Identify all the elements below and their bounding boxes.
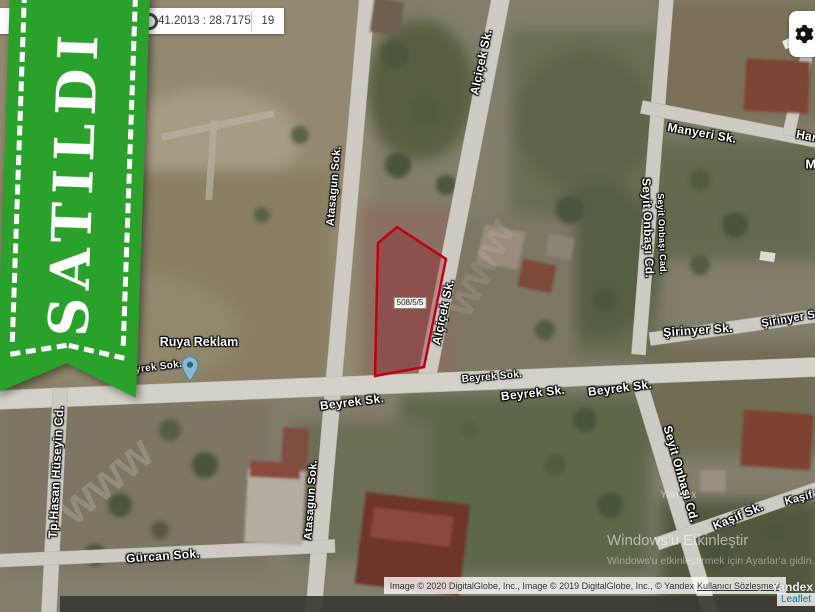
settings-button[interactable]: [789, 11, 815, 57]
ribbon-dash-notch-right: [68, 343, 125, 361]
ribbon-dash-left: [10, 0, 29, 342]
map-pin-icon[interactable]: [181, 356, 199, 382]
coordinates-value: 41.2013 : 28.7175: [158, 15, 251, 27]
sold-ribbon-text: SATILDI: [36, 26, 111, 337]
parcel-number-label: 508/5/5: [394, 297, 427, 309]
leaflet-link[interactable]: Leaflet: [781, 594, 811, 605]
attribution-text: Image © 2020 DigitalGlobe, Inc., Image ©…: [390, 581, 694, 591]
map-attribution: Image © 2020 DigitalGlobe, Inc., Image ©…: [384, 577, 786, 594]
map-application: wwwwww Alçiçek Sk.Alçiçek Sk.Atasagun So…: [0, 0, 815, 612]
ribbon-dash-notch-left: [10, 343, 67, 357]
zoom-level: 19: [252, 15, 284, 27]
leaflet-attribution: Leaflet: [777, 593, 815, 606]
attribution-terms-link[interactable]: Kullanıcı Sözleşmesi: [697, 581, 780, 591]
sold-ribbon: SATILDI: [0, 0, 152, 400]
poi-label: Ruya Reklam: [160, 335, 239, 349]
yandex-logo[interactable]: Yandex: [771, 580, 813, 594]
sold-ribbon-shape: SATILDI: [0, 0, 152, 400]
ribbon-dash-right: [121, 0, 140, 346]
gear-icon: [792, 23, 814, 45]
